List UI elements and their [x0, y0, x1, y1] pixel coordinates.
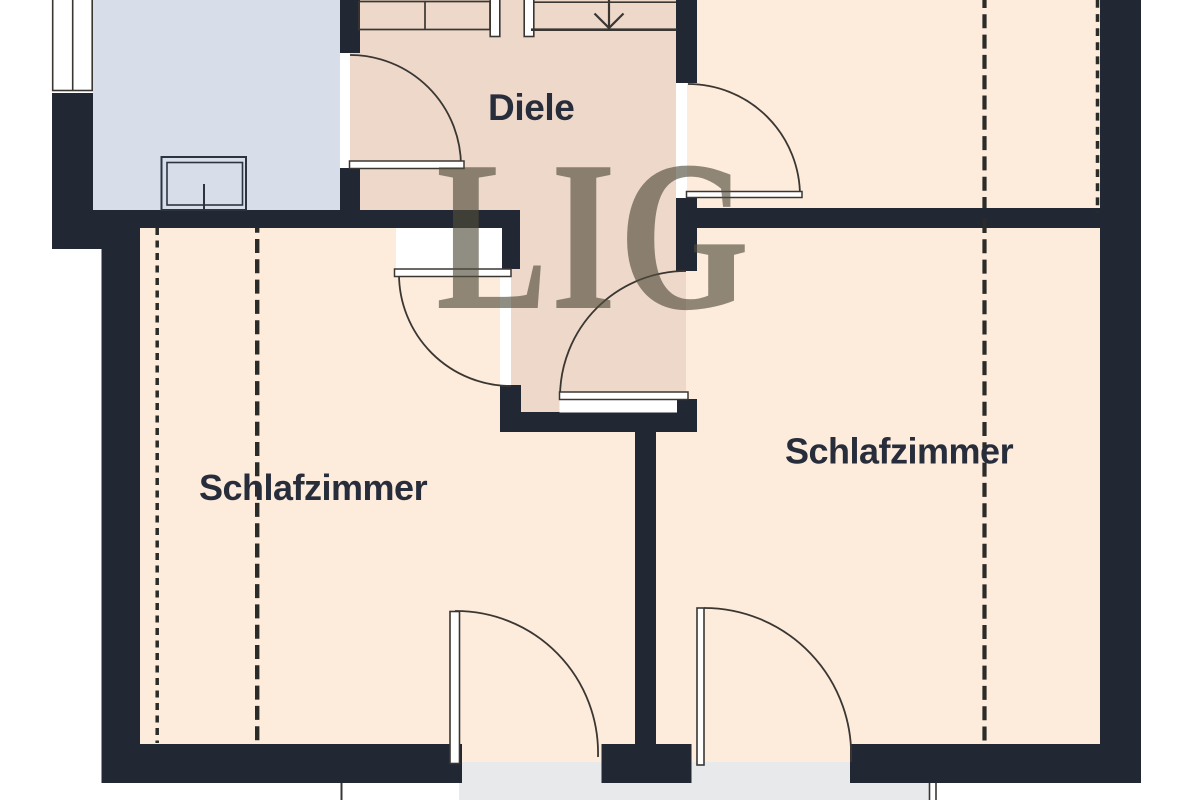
- svg-text:LIG: LIG: [436, 116, 752, 355]
- svg-text:Schlafzimmer: Schlafzimmer: [785, 431, 1014, 472]
- svg-text:Schlafzimmer: Schlafzimmer: [199, 467, 428, 508]
